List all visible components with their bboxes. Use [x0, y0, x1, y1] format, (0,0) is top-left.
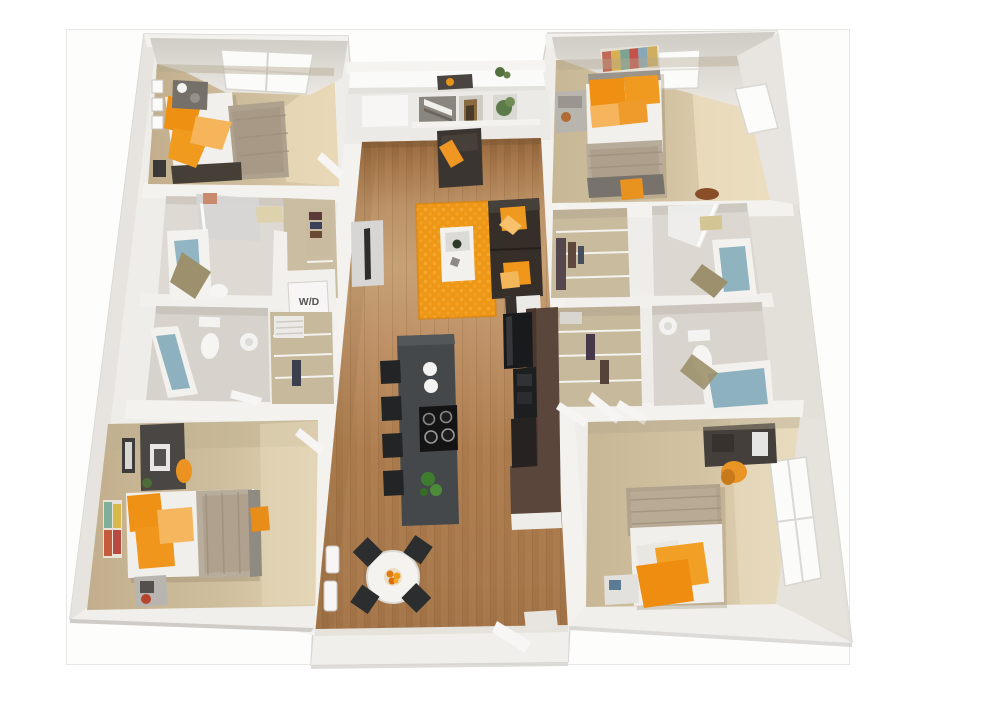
- svg-text:W/D: W/D: [299, 296, 320, 308]
